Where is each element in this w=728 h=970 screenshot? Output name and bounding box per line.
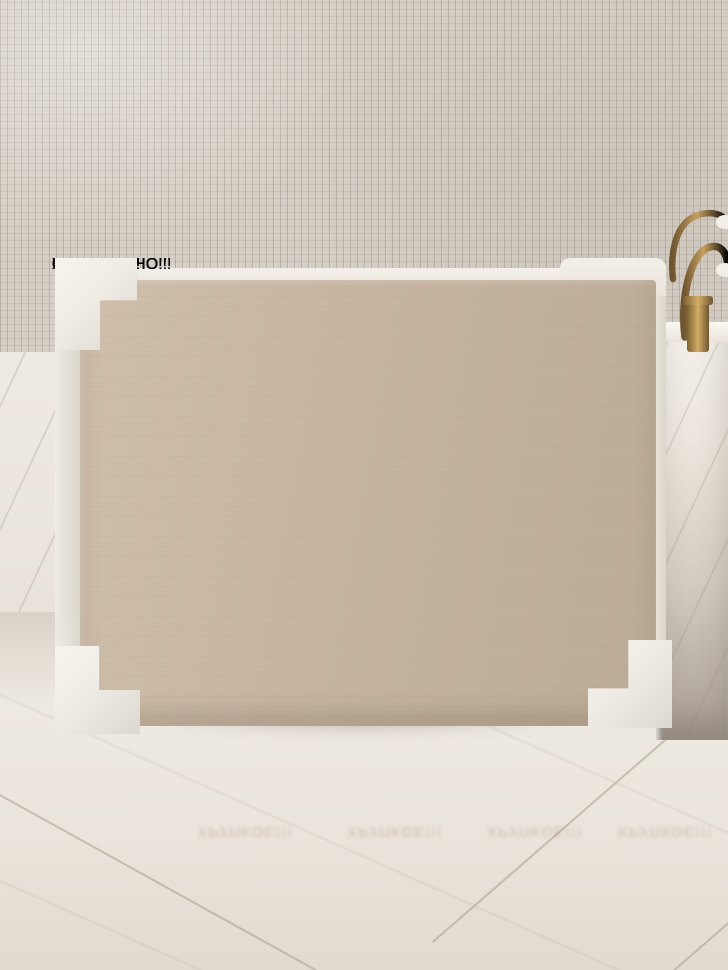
cardboard-panel-right	[425, 286, 652, 640]
cardboard-box: ОСТОРОЖНО!!!ХРУПКОЕ!!! ОСТОРОЖНО!!!ХРУПК…	[52, 256, 668, 734]
packaging-infographic: ХРУПКОЕ!!! ХРУПКОЕ!!! ХРУПКОЕ!!! ХРУПКОЕ…	[0, 0, 728, 970]
floor-reflection-text: ХРУПКОЕ!!!	[470, 818, 600, 840]
floor-reflection-text: ХРУПКОЕ!!!	[330, 818, 460, 840]
foam-edge-left	[55, 350, 81, 650]
floor-reflection-text: ХРУПКОЕ!!!	[600, 818, 728, 840]
marble-wall-left	[0, 352, 58, 652]
floor-reflection-text: ХРУПКОЕ!!!	[180, 818, 310, 840]
